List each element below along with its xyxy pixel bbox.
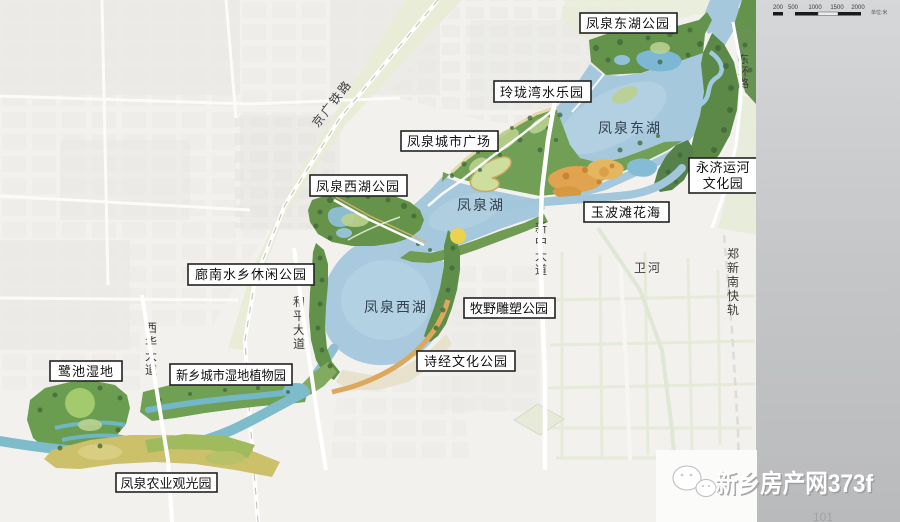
svg-text:1000: 1000: [808, 5, 822, 11]
svg-text:玉波滩花海: 玉波滩花海: [591, 205, 661, 220]
svg-text:诗经文化公园: 诗经文化公园: [424, 354, 508, 369]
svg-text:鹭池湿地: 鹭池湿地: [58, 364, 114, 379]
svg-text:凤泉城市广场: 凤泉城市广场: [407, 134, 491, 149]
svg-text:200: 200: [773, 5, 784, 11]
svg-text:1500: 1500: [830, 5, 844, 11]
svg-text:牧野雕塑公园: 牧野雕塑公园: [470, 301, 548, 316]
svg-text:凤泉西湖: 凤泉西湖: [364, 299, 428, 315]
svg-text:廊南水乡休闲公园: 廊南水乡休闲公园: [195, 267, 307, 282]
svg-text:南: 南: [727, 274, 739, 289]
svg-text:玲珑湾水乐园: 玲珑湾水乐园: [500, 85, 584, 100]
svg-text:轨: 轨: [727, 303, 739, 317]
svg-text:快: 快: [727, 289, 739, 303]
svg-text:永济运河: 永济运河: [696, 160, 750, 175]
svg-text:道: 道: [293, 337, 305, 351]
svg-text:凤泉东湖: 凤泉东湖: [598, 120, 662, 136]
svg-text:单位:米: 单位:米: [871, 9, 887, 16]
svg-text:新乡房产网373f: 新乡房产网373f: [715, 469, 874, 498]
svg-text:凤泉东湖公园: 凤泉东湖公园: [586, 16, 670, 31]
svg-text:凤泉西湖公园: 凤泉西湖公园: [316, 179, 400, 194]
svg-text:文化园: 文化园: [703, 176, 744, 191]
svg-text:凤泉农业观光园: 凤泉农业观光园: [120, 476, 211, 491]
svg-text:2000: 2000: [851, 5, 865, 11]
svg-text:500: 500: [788, 5, 799, 11]
svg-text:卫河: 卫河: [634, 261, 662, 275]
svg-text:新: 新: [727, 260, 739, 275]
svg-text:郑: 郑: [727, 246, 739, 261]
svg-text:新乡城市湿地植物园: 新乡城市湿地植物园: [176, 368, 286, 383]
svg-text:101: 101: [813, 510, 833, 522]
svg-text:凤泉湖: 凤泉湖: [457, 197, 505, 213]
